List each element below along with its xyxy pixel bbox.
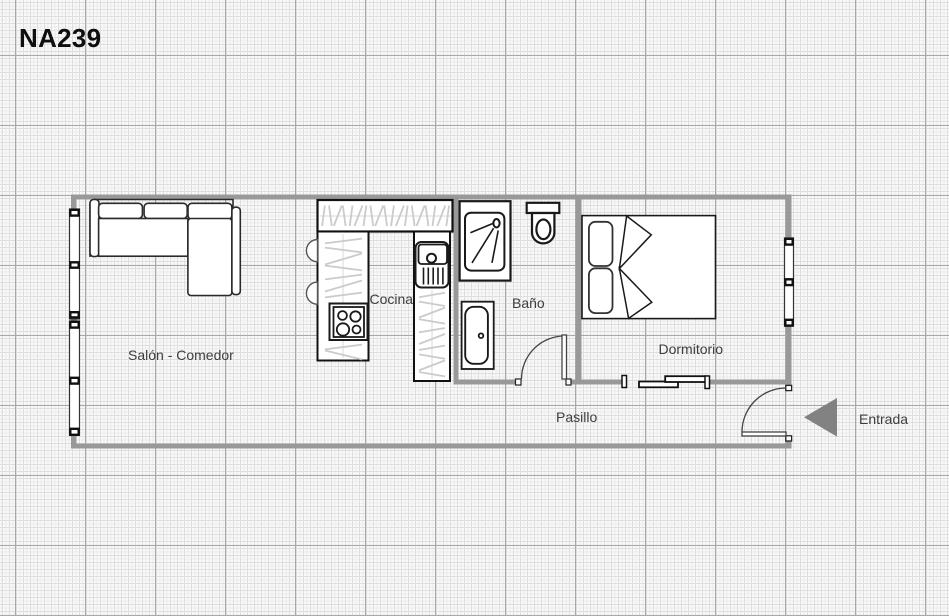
svg-text:Baño: Baño <box>512 295 545 311</box>
svg-text:Salón - Comedor: Salón - Comedor <box>128 347 234 363</box>
svg-text:Dormitorio: Dormitorio <box>659 341 724 357</box>
svg-text:Entrada: Entrada <box>859 411 908 427</box>
svg-text:Pasillo: Pasillo <box>556 409 597 425</box>
svg-text:Cocina: Cocina <box>370 291 414 307</box>
